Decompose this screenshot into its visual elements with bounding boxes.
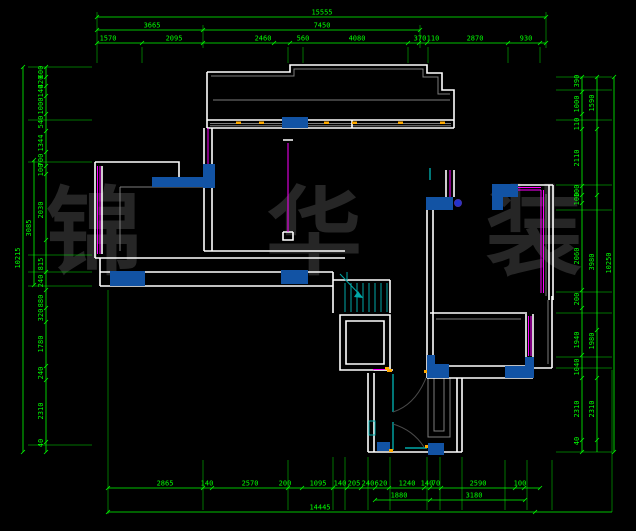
dim-label: 40 <box>37 439 45 447</box>
dim-label: 2460 <box>255 35 272 43</box>
dim-label: 2870 <box>467 35 484 43</box>
dim-label: 40 <box>573 437 581 445</box>
hinge-marks <box>385 367 428 452</box>
dim-label: 140 <box>334 480 347 488</box>
dim-label: 2570 <box>242 480 259 488</box>
dim-label: 3980 <box>588 254 596 271</box>
dim-label: 1590 <box>588 95 596 112</box>
dim-label: 140 <box>201 480 214 488</box>
dim-label: 2030 <box>37 202 45 219</box>
dim-label: 2060 <box>573 248 581 265</box>
dim-label: 2095 <box>166 35 183 43</box>
cad-canvas[interactable]: 锦 华 装 饰 <box>0 0 636 531</box>
dim-label: 540 <box>37 116 45 129</box>
dim-label: 70 <box>432 480 440 488</box>
floor-plan-drawing: 1555536657450157020952460560408037011028… <box>0 0 636 531</box>
windows-magenta <box>98 128 544 370</box>
dim-label: 100 <box>37 164 45 177</box>
dim-label: 200 <box>573 293 581 306</box>
dim-label: 1000 <box>573 96 581 113</box>
dim-label: 1980 <box>588 333 596 350</box>
dim-label: 390 <box>573 75 581 88</box>
stairs <box>340 272 387 312</box>
doors <box>369 168 462 452</box>
dim-label: 1040 <box>573 359 581 376</box>
dim-label: 3180 <box>466 492 483 500</box>
dim-label: 4080 <box>349 35 366 43</box>
dim-label: 10215 <box>14 247 22 268</box>
dim-label: 240 <box>37 367 45 380</box>
door-symbol-icon <box>455 200 462 207</box>
dim-label: 2865 <box>157 480 174 488</box>
dim-label: 240 <box>37 275 45 288</box>
dim-label: 2110 <box>573 150 581 167</box>
dim-label: 14445 <box>309 504 330 512</box>
dim-label: 1940 <box>573 332 581 349</box>
dim-label: 1344 <box>37 135 45 152</box>
dim-label: 110 <box>573 118 581 131</box>
secondary-lines <box>120 69 548 437</box>
dim-label: 2310 <box>37 403 45 420</box>
dim-label: 1095 <box>310 480 327 488</box>
dim-label: 2310 <box>573 401 581 418</box>
dim-label: 2590 <box>470 480 487 488</box>
dim-label: 880 <box>37 295 45 308</box>
dim-label: 100 <box>573 193 581 206</box>
dim-label: 3085 <box>25 220 33 237</box>
dim-label: 1240 <box>399 480 416 488</box>
dim-label: 100 <box>514 480 527 488</box>
door-swing-arc <box>393 378 426 447</box>
dim-label: 370 <box>414 35 427 43</box>
dim-label: 930 <box>520 35 533 43</box>
dim-label: 205 <box>348 480 361 488</box>
dimension-chains: 1555536657450157020952460560408037011028… <box>14 9 616 515</box>
dim-label: 815 <box>37 258 45 271</box>
dim-label: 1000 <box>37 98 45 115</box>
dim-label: 15555 <box>311 9 332 17</box>
dim-label: 3665 <box>144 22 161 30</box>
dim-label: 110 <box>427 35 440 43</box>
dim-label: 620 <box>375 480 388 488</box>
dim-label: 10250 <box>605 252 613 273</box>
stairs-arrow-icon <box>354 291 363 298</box>
dim-label: 1780 <box>37 336 45 353</box>
dim-label: 1570 <box>100 35 117 43</box>
dim-label: 240 <box>362 480 375 488</box>
dim-label: 2310 <box>588 401 596 418</box>
dim-label: 320 <box>37 309 45 322</box>
dim-label: 1880 <box>391 492 408 500</box>
dim-label: 200 <box>279 480 292 488</box>
dim-label: 7450 <box>314 22 331 30</box>
dim-label: 140 <box>37 85 45 98</box>
extension-lines <box>28 12 612 514</box>
dim-label: 560 <box>297 35 310 43</box>
